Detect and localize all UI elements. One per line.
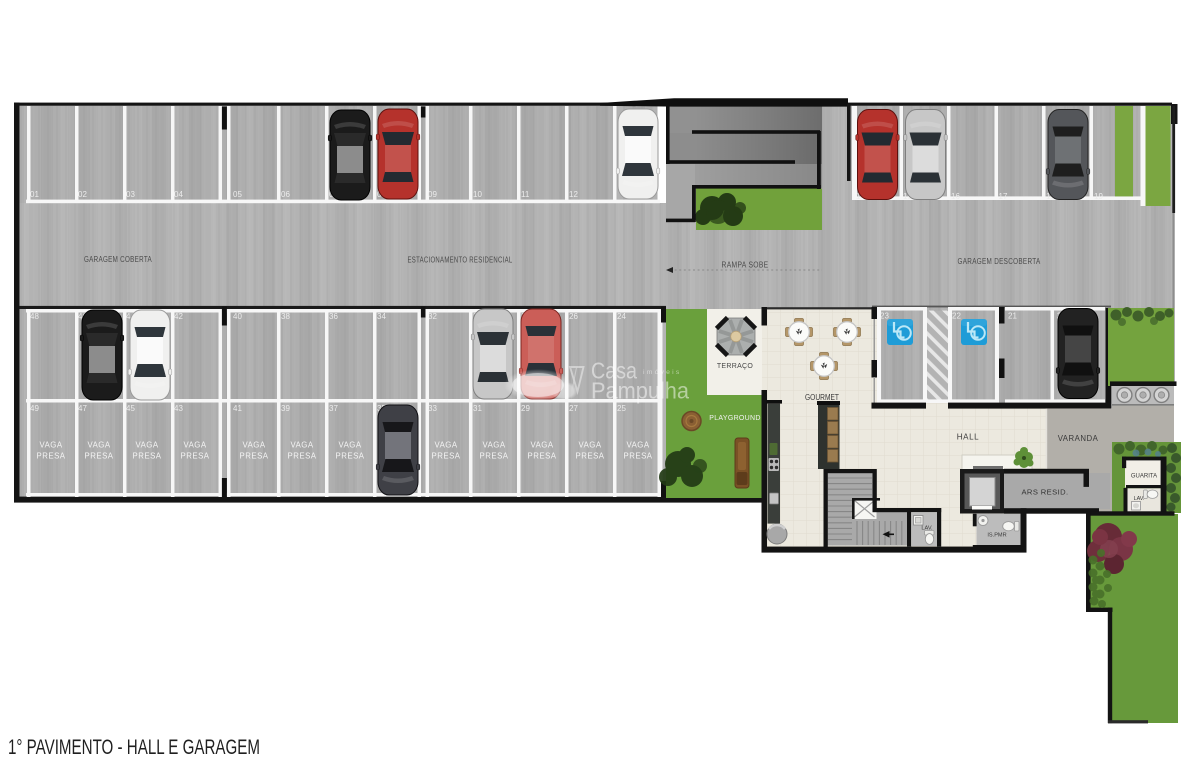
svg-text:VAGA: VAGA: [338, 441, 361, 450]
svg-text:Pampulha: Pampulha: [591, 378, 690, 404]
svg-text:41: 41: [233, 404, 242, 413]
svg-text:34: 34: [377, 312, 386, 321]
svg-text:12: 12: [569, 190, 578, 199]
svg-text:ARS RESID.: ARS RESID.: [1021, 488, 1068, 497]
svg-text:GARAGEM COBERTA: GARAGEM COBERTA: [84, 255, 152, 264]
svg-text:27: 27: [569, 404, 578, 413]
svg-text:48: 48: [30, 312, 39, 321]
svg-text:PRESA: PRESA: [624, 452, 653, 461]
svg-text:1° PAVIMENTO - HALL E GARAGEM: 1° PAVIMENTO - HALL E GARAGEM: [8, 735, 260, 759]
svg-text:33: 33: [428, 404, 437, 413]
svg-text:VAGA: VAGA: [626, 441, 649, 450]
svg-text:16: 16: [951, 192, 960, 201]
svg-text:11: 11: [521, 190, 530, 199]
svg-text:43: 43: [174, 404, 183, 413]
svg-text:PRESA: PRESA: [37, 452, 66, 461]
svg-text:LAV.: LAV.: [921, 526, 933, 532]
svg-text:37: 37: [329, 404, 338, 413]
svg-text:PRESA: PRESA: [336, 452, 365, 461]
svg-text:24: 24: [617, 312, 626, 321]
svg-text:VAGA: VAGA: [39, 441, 62, 450]
svg-text:PLAYGROUND: PLAYGROUND: [709, 415, 761, 422]
svg-text:PRESA: PRESA: [181, 452, 210, 461]
svg-text:25: 25: [617, 404, 626, 413]
svg-text:26: 26: [569, 312, 578, 321]
svg-text:10: 10: [473, 190, 482, 199]
svg-text:VAGA: VAGA: [242, 441, 265, 450]
svg-text:21: 21: [1008, 312, 1017, 321]
svg-text:09: 09: [428, 190, 437, 199]
svg-text:RAMPA SOBE: RAMPA SOBE: [722, 261, 769, 270]
svg-text:VAGA: VAGA: [530, 441, 553, 450]
svg-text:imóveis: imóveis: [643, 369, 681, 376]
svg-text:PRESA: PRESA: [528, 452, 557, 461]
svg-text:04: 04: [174, 190, 183, 199]
svg-text:05: 05: [233, 190, 242, 199]
svg-text:VAGA: VAGA: [135, 441, 158, 450]
svg-text:PRESA: PRESA: [576, 452, 605, 461]
svg-text:06: 06: [281, 190, 290, 199]
svg-text:ESTACIONAMENTO RESIDENCIAL: ESTACIONAMENTO RESIDENCIAL: [408, 256, 513, 265]
svg-text:32: 32: [428, 312, 437, 321]
svg-text:31: 31: [473, 404, 482, 413]
svg-text:17: 17: [999, 192, 1008, 201]
svg-text:PRESA: PRESA: [288, 452, 317, 461]
svg-text:VAGA: VAGA: [87, 441, 110, 450]
svg-text:GUARITA: GUARITA: [1131, 474, 1157, 480]
svg-text:42: 42: [174, 312, 183, 321]
svg-text:49: 49: [30, 404, 39, 413]
svg-text:VAGA: VAGA: [434, 441, 457, 450]
svg-text:VAGA: VAGA: [578, 441, 601, 450]
svg-text:PRESA: PRESA: [480, 452, 509, 461]
svg-text:GARAGEM DESCOBERTA: GARAGEM DESCOBERTA: [958, 257, 1041, 266]
svg-text:23: 23: [880, 312, 889, 321]
svg-text:40: 40: [233, 312, 242, 321]
svg-text:01: 01: [30, 190, 39, 199]
svg-text:45: 45: [126, 404, 135, 413]
svg-text:22: 22: [952, 312, 961, 321]
svg-text:38: 38: [281, 312, 290, 321]
svg-text:36: 36: [329, 312, 338, 321]
svg-text:39: 39: [281, 404, 290, 413]
svg-text:LAV.: LAV.: [1134, 496, 1145, 502]
svg-text:GOURMET: GOURMET: [805, 393, 839, 402]
svg-text:VARANDA: VARANDA: [1058, 434, 1099, 443]
svg-text:PRESA: PRESA: [133, 452, 162, 461]
svg-text:PRESA: PRESA: [432, 452, 461, 461]
svg-text:TERRAÇO: TERRAÇO: [717, 363, 754, 370]
svg-text:02: 02: [78, 190, 87, 199]
svg-text:IS.PMR: IS.PMR: [987, 533, 1006, 539]
svg-text:PRESA: PRESA: [240, 452, 269, 461]
svg-text:PRESA: PRESA: [85, 452, 114, 461]
svg-text:47: 47: [78, 404, 87, 413]
svg-text:HALL: HALL: [957, 433, 979, 442]
svg-text:VAGA: VAGA: [290, 441, 313, 450]
svg-text:03: 03: [126, 190, 135, 199]
svg-text:19: 19: [1094, 192, 1103, 201]
svg-text:29: 29: [521, 404, 530, 413]
svg-text:VAGA: VAGA: [482, 441, 505, 450]
svg-text:VAGA: VAGA: [183, 441, 206, 450]
